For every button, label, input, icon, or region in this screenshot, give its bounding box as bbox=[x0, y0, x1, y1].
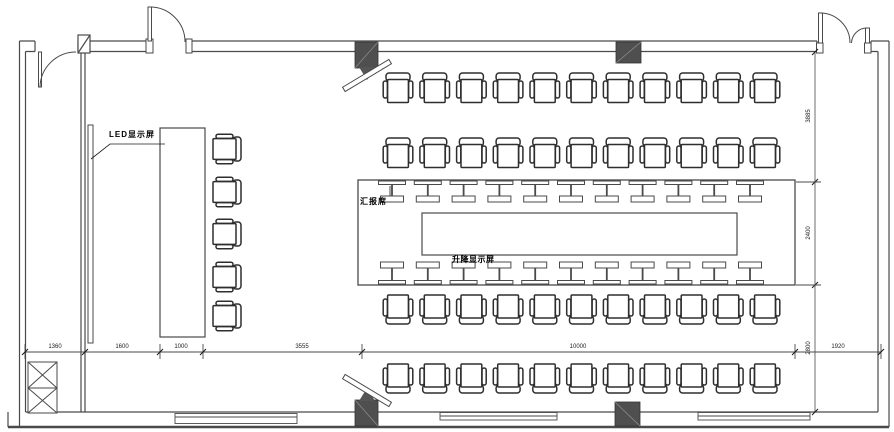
dimension-label-vertical: 2800 bbox=[806, 341, 812, 354]
floor-plan: LED显示屏 汇报席 升降显示屏 1360 1600 1000 3555 100… bbox=[0, 0, 894, 432]
chair bbox=[640, 364, 670, 393]
door-top-left bbox=[39, 52, 77, 87]
chair bbox=[530, 138, 560, 168]
chair bbox=[420, 138, 450, 168]
led-label-leader bbox=[91, 144, 165, 159]
chair bbox=[677, 138, 707, 168]
chair bbox=[420, 364, 450, 393]
chair bbox=[457, 73, 487, 103]
chair bbox=[750, 138, 780, 168]
wall-cabinets bbox=[175, 413, 810, 424]
chair bbox=[493, 73, 523, 103]
dimension-label: 1920 bbox=[831, 344, 844, 350]
chair bbox=[603, 73, 633, 103]
shaft bbox=[28, 362, 57, 413]
chair bbox=[567, 364, 597, 393]
dimension-label-vertical: 2400 bbox=[806, 226, 812, 239]
dimension-label: 3555 bbox=[295, 344, 308, 350]
dimension-label: 1000 bbox=[174, 344, 187, 350]
chair bbox=[603, 138, 633, 168]
chair bbox=[457, 364, 487, 393]
chair bbox=[714, 295, 744, 324]
chair bbox=[493, 295, 523, 324]
chair bbox=[493, 138, 523, 168]
chair bbox=[383, 138, 413, 168]
chair bbox=[603, 364, 633, 393]
chair bbox=[677, 364, 707, 393]
chair bbox=[383, 295, 413, 324]
chair bbox=[457, 295, 487, 324]
chair bbox=[677, 73, 707, 103]
chair bbox=[213, 262, 241, 292]
chair bbox=[530, 364, 560, 393]
chair bbox=[714, 138, 744, 168]
chair bbox=[530, 73, 560, 103]
chair bbox=[383, 73, 413, 103]
chair bbox=[420, 295, 450, 324]
chair bbox=[213, 177, 241, 207]
chair bbox=[750, 295, 780, 324]
dimension-label: 1600 bbox=[115, 344, 128, 350]
led-screen-label: LED显示屏 bbox=[109, 130, 155, 139]
chair bbox=[714, 73, 744, 103]
chair bbox=[493, 364, 523, 393]
chair bbox=[420, 73, 450, 103]
left-wall bbox=[20, 41, 26, 427]
dimension-label-vertical: 3885 bbox=[806, 109, 812, 122]
chair bbox=[750, 364, 780, 393]
chair bbox=[213, 219, 241, 249]
lifting-screen bbox=[422, 213, 737, 255]
chair bbox=[677, 295, 707, 324]
door-top-center bbox=[146, 7, 192, 53]
chair bbox=[640, 138, 670, 168]
chair bbox=[640, 295, 670, 324]
chair bbox=[567, 73, 597, 103]
chair bbox=[213, 301, 241, 331]
dimension-label: 10000 bbox=[570, 344, 587, 350]
right-wall bbox=[878, 41, 889, 427]
chair bbox=[567, 138, 597, 168]
dimension-label: 1360 bbox=[48, 344, 61, 350]
side-table bbox=[160, 128, 205, 337]
chair bbox=[640, 73, 670, 103]
chair bbox=[530, 295, 560, 324]
lifting-screen-label: 升降显示屏 bbox=[452, 255, 495, 264]
chair bbox=[714, 364, 744, 393]
partition-wall bbox=[81, 52, 85, 413]
presenter-seat-label: 汇报席 bbox=[360, 197, 387, 206]
chair bbox=[213, 134, 241, 164]
chair bbox=[750, 73, 780, 103]
floor-plan-drawing bbox=[0, 0, 894, 432]
chair bbox=[383, 364, 413, 393]
chair bbox=[567, 295, 597, 324]
door-top-right-double bbox=[817, 13, 872, 53]
chair bbox=[457, 138, 487, 168]
chair bbox=[603, 295, 633, 324]
doors bbox=[39, 7, 872, 87]
